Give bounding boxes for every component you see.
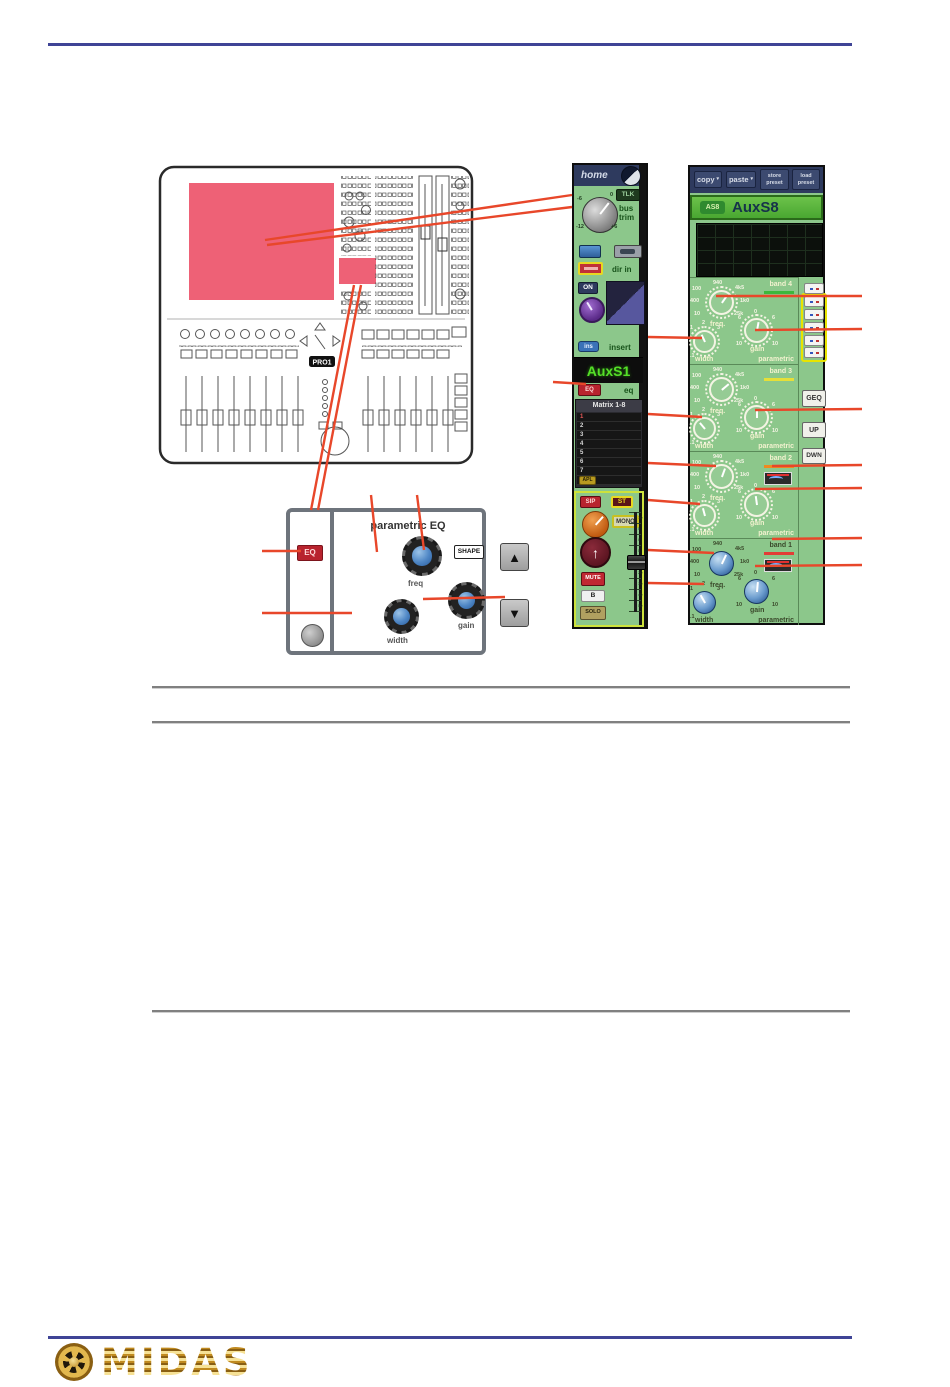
clock-icon[interactable] [621,166,641,186]
table-rule [152,1010,850,1013]
mute-button[interactable]: MUTE [581,572,605,586]
band-width-knob[interactable] [693,330,716,353]
band-down-button[interactable]: ▼ [500,599,529,627]
bus-trim-tick: 0 [610,193,613,199]
parametric-eq-detail-panel: EQ parametric EQ freq SHAPE ▲ ▼ width [286,508,486,655]
eq-name-bar: AS8 AuxS8 [690,195,823,220]
width-knob[interactable] [384,599,419,634]
insert-on-button[interactable]: ins [578,341,599,352]
band-up-button[interactable]: UP [802,422,826,438]
eq-on-button[interactable]: EQ [297,545,323,561]
matrix-title: Matrix 1-8 [576,400,642,412]
eq-toolbar: copy▾ paste▾ store preset load preset [690,167,823,193]
st-button[interactable]: ST [611,496,633,508]
bus-trim-tick: -12 [576,225,584,231]
load-preset-button[interactable]: load preset [792,169,820,190]
band-gain-knob[interactable] [744,405,769,430]
direct-level-knob[interactable] [579,297,605,323]
geq-button[interactable]: GEQ [802,390,826,407]
eq-shape-select-button[interactable] [804,335,824,346]
band-down-button[interactable]: DWN [802,448,826,464]
home-strip-header: home [574,165,639,186]
band-status-underline [764,465,794,468]
shape-button[interactable]: SHAPE [454,545,484,559]
solo-button[interactable]: SOLO [580,606,606,620]
bus-trim-label2: trim [619,213,634,222]
band-shape-display-button[interactable] [764,559,792,572]
band-freq-knob[interactable] [709,290,734,315]
insert-label: insert [609,343,631,352]
auxs8-eq-screenshot: copy▾ paste▾ store preset load preset AS… [688,165,825,625]
table-rule [152,721,850,724]
band-status-underline [764,552,794,555]
down-arrow-icon: ▼ [508,607,521,620]
eq-shape-select-button[interactable] [804,309,824,320]
matrix-row[interactable]: 7 [577,467,641,476]
gain-knob-label: gain [458,621,474,630]
matrix-row[interactable]: 1 [577,413,641,422]
eq-shape-select-button[interactable] [804,322,824,333]
top-rule [48,43,852,46]
parametric-eq-subpanel: parametric EQ freq SHAPE ▲ ▼ width gain [334,512,482,651]
tlk-button[interactable]: TLK [616,189,640,201]
direct-pan-display [606,281,645,325]
bus-small-gray-button[interactable] [614,245,642,258]
eq-shape-select-button[interactable] [804,296,824,307]
direct-on-button[interactable]: ON [578,282,598,294]
band-width-knob[interactable] [693,591,716,614]
store-preset-button[interactable]: store preset [760,169,789,190]
eq-switch-subpanel: EQ [290,512,334,651]
freq-knob-label: freq [408,579,423,588]
band-label: band 4 [742,281,792,288]
band-label: band 3 [742,368,792,375]
master-section: SIP ST MONO ↑ MUTE B SOLO 10 5 0 5 10 20… [574,491,644,627]
band-label: band 1 [742,542,792,549]
bus-type-badge: AS8 [700,201,725,214]
channel-name: AuxS1 [587,363,631,379]
eq-band-section: band 2 100 940 4k5 400 10 1k0 25k freq. … [690,451,798,539]
master-level-knob[interactable]: ↑ [580,537,611,568]
dropdown-icon: ▾ [751,177,754,182]
table-rule [152,686,850,689]
eq-band-section: band 4 100 940 4k5 400 10 1k0 25k freq. … [690,277,798,365]
eq-shape-select-button[interactable] [804,347,824,358]
band-up-button[interactable]: ▲ [500,543,529,571]
eq-panel-knob[interactable] [301,624,324,647]
eq-band-section: band 1 100 940 4k5 400 10 1k0 25k freq. … [690,538,798,626]
matrix-row[interactable]: 3 [577,431,641,440]
eq-response-graph [696,223,823,277]
freq-knob[interactable] [402,536,442,576]
band-width-knob[interactable] [693,417,716,440]
copy-button[interactable]: copy▾ [694,171,722,188]
footer-rule [48,1336,852,1339]
matrix-row[interactable]: 2 [577,422,641,431]
sip-button[interactable]: SIP [580,496,601,508]
midas-wordmark: MIDAS [101,1344,253,1381]
home-strip-screenshot: home TLK -6 0 -12 +6 bus trim dir in ON … [572,163,648,629]
pro1-badge-label: PRO1 [312,360,331,367]
eq-band-section: band 3 100 940 4k5 400 10 1k0 25k freq. … [690,364,798,452]
bus-trim-tick: +6 [611,225,617,231]
home-tab-label[interactable]: home [581,170,608,181]
console-screen-highlight [189,183,334,300]
gain-knob[interactable] [448,582,485,619]
band-freq-knob[interactable] [709,377,734,402]
apl-button[interactable]: APL [579,476,596,485]
matrix-row[interactable]: 5 [577,449,641,458]
width-knob-label: width [387,636,408,645]
band-gain-knob[interactable] [744,579,769,604]
band-freq-knob[interactable] [709,464,734,489]
eq-bus-name: AuxS8 [732,199,779,216]
parametric-eq-title: parametric EQ [334,520,482,532]
bus-small-blue-button[interactable] [579,245,601,258]
bus-trim-label: bus [619,204,633,213]
band-status-underline [764,291,794,294]
console-subscreen-highlight [339,258,376,284]
band-gain-knob[interactable] [744,318,769,343]
channel-name-plate[interactable]: AuxS1 [574,357,643,383]
matrix-row[interactable]: 6 [577,458,641,467]
dropdown-icon: ▾ [717,177,720,182]
strip-eq-label: eq [624,386,633,395]
eq-side-column: GEQ UP DWN [798,277,824,625]
band-gain-knob[interactable] [744,492,769,517]
band-shape-display-button[interactable] [764,472,792,485]
midas-emblem-icon [55,1343,93,1381]
matrix-row[interactable]: 4 [577,440,641,449]
dir-in-on-button[interactable] [578,262,603,275]
fader-cap[interactable] [627,555,646,570]
matrix-panel: Matrix 1-8 1 2 3 4 5 6 7 8 APL [575,399,643,488]
band-status-underline [764,378,794,381]
band-width-knob[interactable] [693,504,716,527]
dir-in-label: dir in [612,265,632,274]
band-label: band 2 [742,455,792,462]
b-button[interactable]: B [581,590,605,602]
midas-logo: MIDAS [55,1343,253,1381]
up-arrow-icon: ▲ [508,551,521,564]
eq-shape-select-button[interactable] [804,283,824,294]
paste-button[interactable]: paste▾ [726,171,756,188]
strip-eq-button[interactable]: EQ [578,384,601,396]
band-freq-knob[interactable] [709,551,734,576]
manual-page: PRO1 [0,0,950,1387]
pan-knob[interactable] [582,511,609,538]
bus-trim-tick: -6 [577,197,582,203]
console-diagram: PRO1 [157,164,475,466]
